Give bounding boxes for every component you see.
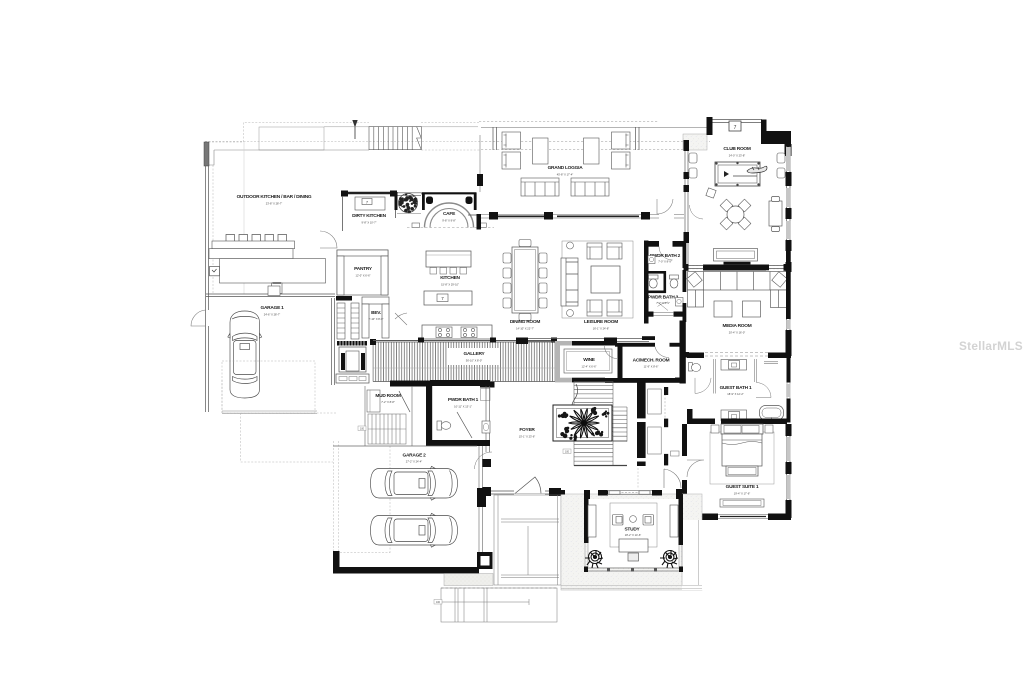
svg-text:16'-1" X 24'-8": 16'-1" X 24'-8" bbox=[593, 327, 609, 331]
svg-text:20'-4" X 16'-0": 20'-4" X 16'-0" bbox=[729, 331, 745, 335]
svg-text:11'-9" X 8'-6": 11'-9" X 8'-6" bbox=[644, 365, 659, 369]
svg-text:WINE: WINE bbox=[583, 357, 596, 363]
svg-text:LEISURE ROOM: LEISURE ROOM bbox=[584, 319, 618, 325]
svg-text:18'-2" X 14'-6": 18'-2" X 14'-6" bbox=[625, 533, 641, 537]
svg-text:9'-8" X 9'-8": 9'-8" X 9'-8" bbox=[442, 219, 456, 223]
svg-text:12'-4" X 6'-6": 12'-4" X 6'-6" bbox=[582, 365, 597, 369]
svg-text:7'-10" X 8'-0": 7'-10" X 8'-0" bbox=[369, 317, 384, 321]
svg-text:PWDR BATH 1: PWDR BATH 1 bbox=[448, 397, 479, 403]
svg-text:StellarMLS: StellarMLS bbox=[959, 339, 1023, 353]
svg-text:27'-2" X 24'-4": 27'-2" X 24'-4" bbox=[406, 460, 422, 464]
svg-text:12'-0" X 6'-6": 12'-0" X 6'-6" bbox=[356, 274, 371, 278]
svg-text:18'-9" X 12'-2": 18'-9" X 12'-2" bbox=[727, 392, 743, 396]
svg-text:10'-11" X 13'-1": 10'-11" X 13'-1" bbox=[454, 405, 472, 409]
svg-text:7'-2" X 6'-1": 7'-2" X 6'-1" bbox=[656, 301, 670, 305]
svg-text:7'-2" X 8'-8": 7'-2" X 8'-8" bbox=[381, 400, 395, 404]
svg-text:GUEST SUITE 1: GUEST SUITE 1 bbox=[726, 484, 759, 490]
svg-text:24'-0" X 23'-8": 24'-0" X 23'-8" bbox=[729, 154, 745, 158]
svg-text:BEV.: BEV. bbox=[371, 310, 381, 316]
svg-text:15'-1" X 23'-6": 15'-1" X 23'-6" bbox=[519, 435, 535, 439]
svg-text:FOYER: FOYER bbox=[519, 427, 535, 433]
svg-text:19'-4" X 17'-6": 19'-4" X 17'-6" bbox=[734, 492, 750, 496]
svg-text:GRAND LOGGIA: GRAND LOGGIA bbox=[548, 165, 584, 171]
svg-text:36'-10" X 8'-0": 36'-10" X 8'-0" bbox=[466, 359, 482, 363]
svg-text:7'-0" X 8'-9": 7'-0" X 8'-9" bbox=[658, 260, 672, 264]
svg-text:PANTRY: PANTRY bbox=[354, 266, 373, 272]
svg-text:GUEST BATH 1: GUEST BATH 1 bbox=[720, 385, 752, 391]
svg-text:45'-8" X 17'-4": 45'-8" X 17'-4" bbox=[557, 173, 573, 177]
svg-text:DINING ROOM: DINING ROOM bbox=[510, 319, 541, 325]
svg-text:CLUB ROOM: CLUB ROOM bbox=[723, 146, 751, 152]
svg-text:PWDR BATH 3: PWDR BATH 3 bbox=[648, 295, 679, 301]
svg-text:STUDY: STUDY bbox=[624, 527, 640, 533]
svg-text:9'-8" X 10'-7": 9'-8" X 10'-7" bbox=[362, 221, 377, 225]
svg-text:15'-8" X 29'-10": 15'-8" X 29'-10" bbox=[441, 283, 459, 287]
svg-text:GALLERY: GALLERY bbox=[464, 351, 486, 357]
svg-text:7: 7 bbox=[734, 125, 737, 131]
svg-text:AC/MECH. ROOM: AC/MECH. ROOM bbox=[633, 358, 670, 364]
svg-text:GARAGE 1: GARAGE 1 bbox=[260, 305, 284, 311]
svg-text:100: 100 bbox=[360, 428, 365, 431]
svg-text:14'-10" X 22'-7": 14'-10" X 22'-7" bbox=[516, 327, 534, 331]
svg-text:MUD ROOM: MUD ROOM bbox=[375, 393, 400, 399]
svg-text:23'-8" X 28'-7": 23'-8" X 28'-7" bbox=[266, 202, 282, 206]
svg-text:100: 100 bbox=[436, 601, 441, 604]
svg-text:100: 100 bbox=[565, 451, 570, 454]
svg-text:OUTDOOR KITCHEN / BAR / DINING: OUTDOOR KITCHEN / BAR / DINING bbox=[237, 194, 312, 200]
svg-text:24'-6" X 28'-7": 24'-6" X 28'-7" bbox=[264, 313, 280, 317]
svg-text:CAFE: CAFE bbox=[443, 211, 456, 217]
svg-text:KITCHEN: KITCHEN bbox=[440, 275, 460, 281]
svg-text:MEDIA ROOM: MEDIA ROOM bbox=[722, 323, 751, 329]
svg-text:GARAGE 2: GARAGE 2 bbox=[402, 453, 426, 459]
svg-text:DIRTY KITCHEN: DIRTY KITCHEN bbox=[352, 213, 386, 219]
